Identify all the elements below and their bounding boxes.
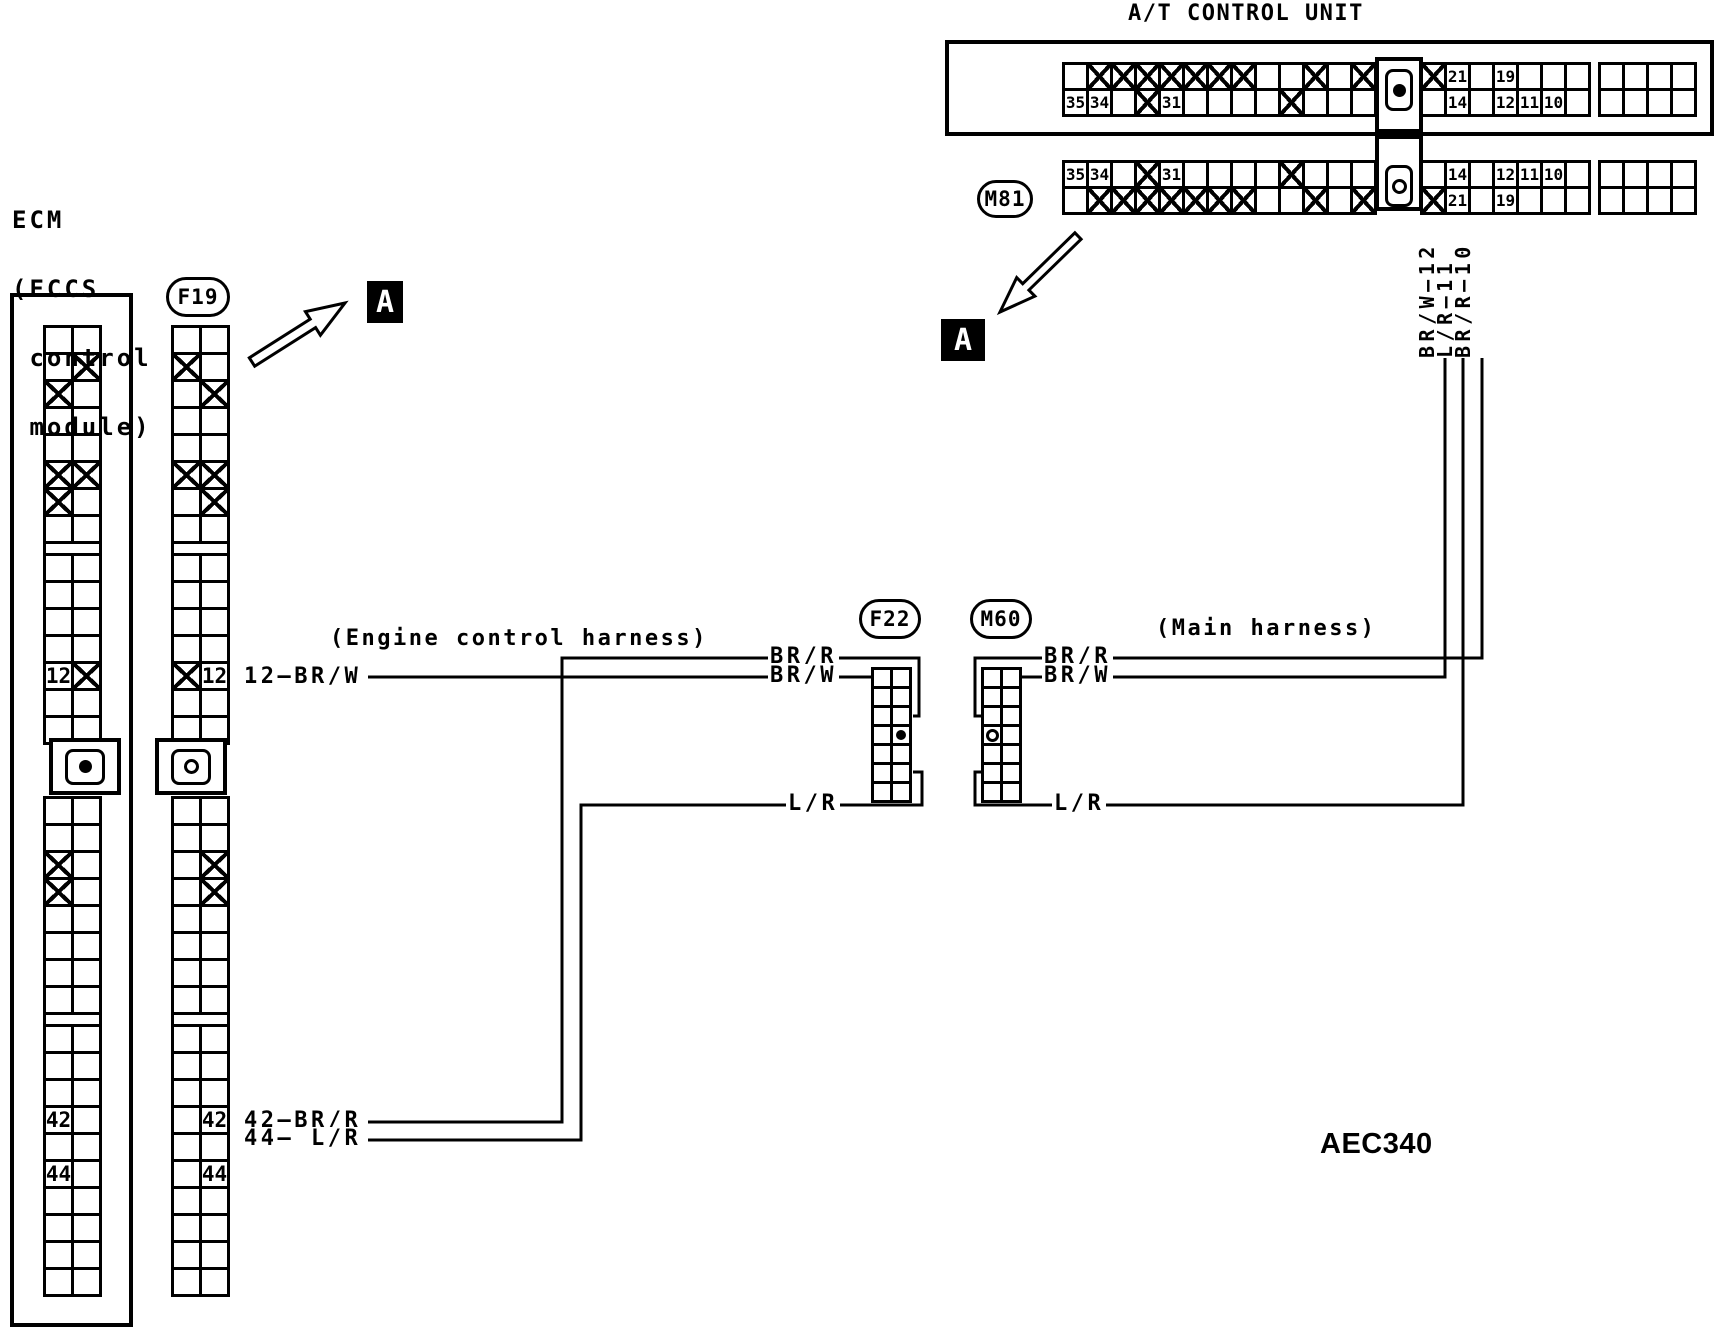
pin-cell: 12 xyxy=(43,661,74,691)
wire-label-f22-lr: L/R xyxy=(786,792,840,816)
main-harness-label: (Main harness) xyxy=(1154,617,1378,641)
pin-cell xyxy=(1598,186,1625,215)
pin-cell xyxy=(71,1267,102,1297)
pin-cell xyxy=(171,985,202,1015)
pin-cell xyxy=(71,634,102,664)
pin-cell xyxy=(1254,160,1281,189)
ecm-label-line3: control xyxy=(12,347,152,370)
pin-cell xyxy=(1670,62,1697,91)
wire-label-m60-brw: BR/W xyxy=(1042,664,1113,688)
pin-cell xyxy=(199,514,230,544)
pin-cell xyxy=(1564,186,1591,215)
pin-cell xyxy=(171,1213,202,1243)
pin-cell xyxy=(71,607,102,637)
pin-cell xyxy=(71,958,102,988)
strip-row xyxy=(43,553,102,583)
strip-row xyxy=(43,1240,102,1270)
pin-cell xyxy=(199,553,230,583)
pin-cell xyxy=(1564,160,1591,189)
pin-cell xyxy=(1564,88,1591,117)
pin-cell xyxy=(43,931,74,961)
pin-cell xyxy=(199,1078,230,1108)
pin-cell xyxy=(71,1105,102,1135)
pin-cell xyxy=(199,1240,230,1270)
pin-cell xyxy=(199,688,230,718)
pin-cell xyxy=(1326,160,1353,189)
strip-row xyxy=(171,985,230,1015)
pin-cell xyxy=(1646,62,1673,91)
pin-cell xyxy=(1598,62,1625,91)
pin-cell-x xyxy=(1086,186,1113,215)
strip-row xyxy=(171,406,230,436)
strip-row xyxy=(43,931,102,961)
pin-cell: 12 xyxy=(1492,88,1519,117)
pin-cell xyxy=(1230,88,1257,117)
pin-cell xyxy=(1564,62,1591,91)
pin-cell xyxy=(1670,186,1697,215)
strip-row xyxy=(43,580,102,610)
connector-id-f19: F19 xyxy=(166,277,230,317)
strip-row xyxy=(43,1024,102,1054)
strip-row: 44 xyxy=(43,1159,102,1189)
pin-cell xyxy=(43,823,74,853)
pin-cell xyxy=(71,1078,102,1108)
f19-connector-strip: 124244 xyxy=(171,325,230,1297)
pin-cell xyxy=(1670,160,1697,189)
pin-cell xyxy=(199,406,230,436)
pin-cell xyxy=(71,1213,102,1243)
pin-cell xyxy=(171,688,202,718)
pin-cell xyxy=(1468,88,1495,117)
pin-cell xyxy=(171,904,202,934)
pin-cell xyxy=(71,904,102,934)
pin-cell xyxy=(43,607,74,637)
pin-cell xyxy=(1230,160,1257,189)
pin-cell-x xyxy=(1110,62,1137,91)
pin-cell xyxy=(1326,88,1353,117)
pin-cell xyxy=(171,433,202,463)
pin-cell-x xyxy=(199,850,230,880)
wire-label-at-pin10: BR/R—10 xyxy=(1454,242,1472,358)
strip-row xyxy=(171,580,230,610)
strip-row xyxy=(43,850,102,880)
pin-cell xyxy=(71,514,102,544)
pin-cell: 35 xyxy=(1062,88,1089,117)
pin-cell xyxy=(171,553,202,583)
pin-cell-x xyxy=(1302,62,1329,91)
ecm-label: ECM (ECCS control module) xyxy=(12,163,152,485)
pin-cell xyxy=(43,1051,74,1081)
pin-cell-x xyxy=(43,487,74,517)
pin-cell: 44 xyxy=(43,1159,74,1189)
pin-cell xyxy=(171,580,202,610)
pin-cell-x xyxy=(199,487,230,517)
pin-cell xyxy=(71,580,102,610)
pin-cell-x xyxy=(1206,62,1233,91)
pin-cell: 34 xyxy=(1086,160,1113,189)
pin-cell xyxy=(171,607,202,637)
pin-cell xyxy=(1468,62,1495,91)
strip-row xyxy=(43,985,102,1015)
key-slot-inner xyxy=(65,749,105,785)
pin-cell-x xyxy=(43,877,74,907)
pin-cell-x xyxy=(1230,186,1257,215)
connector-id-f22: F22 xyxy=(859,599,921,639)
pin-cell xyxy=(199,1267,230,1297)
pin-cell-x xyxy=(1350,62,1377,91)
pin-cell xyxy=(1468,186,1495,215)
pin-cell xyxy=(43,634,74,664)
pin-cell xyxy=(43,904,74,934)
pin-cell-x xyxy=(1182,62,1209,91)
wiring-diagram: A/T CONTROL UNIT 211935343114121110 3534… xyxy=(0,0,1726,1344)
strip-row xyxy=(171,379,230,409)
pin-cell xyxy=(171,379,202,409)
section-arrow-left-icon xyxy=(249,303,345,366)
pin-cell xyxy=(1206,160,1233,189)
pin-cell: 12 xyxy=(1492,160,1519,189)
m81-connector: 353431141211102119 xyxy=(1062,160,1697,215)
pin-cell xyxy=(43,514,74,544)
pin-cell-x xyxy=(1158,186,1185,215)
pin-cell xyxy=(71,1132,102,1162)
strip-row xyxy=(43,607,102,637)
pin-cell xyxy=(1468,160,1495,189)
strip-row xyxy=(43,514,102,544)
pin-cell: 31 xyxy=(1158,88,1185,117)
pin-cell: 35 xyxy=(1062,160,1089,189)
strip-row xyxy=(43,1051,102,1081)
pin-cell: 10 xyxy=(1540,160,1567,189)
pin-cell-x xyxy=(1158,62,1185,91)
strip-row xyxy=(171,1240,230,1270)
pin-cell xyxy=(1254,186,1281,215)
pin-cell xyxy=(171,796,202,826)
pin-cell xyxy=(199,1132,230,1162)
pin-cell xyxy=(71,985,102,1015)
pin-cell xyxy=(1110,160,1137,189)
strip-row xyxy=(171,460,230,490)
pin-cell xyxy=(1278,62,1305,91)
strip-row xyxy=(43,1213,102,1243)
pin-cell: 12 xyxy=(199,661,230,691)
strip-row xyxy=(171,1078,230,1108)
strip-row xyxy=(43,823,102,853)
wire-lr-main xyxy=(975,358,1463,805)
strip-row xyxy=(171,1267,230,1297)
strip-row xyxy=(171,931,230,961)
pin-cell xyxy=(1182,88,1209,117)
key-slot xyxy=(49,738,121,795)
pin-cell xyxy=(71,1024,102,1054)
key-slot xyxy=(155,738,227,795)
pin-cell: 31 xyxy=(1158,160,1185,189)
pin-cell xyxy=(199,1024,230,1054)
pin-cell xyxy=(43,1132,74,1162)
pin-cell xyxy=(1420,160,1447,189)
pin-cell-x xyxy=(199,379,230,409)
pin-cell xyxy=(199,931,230,961)
f22-connector xyxy=(871,667,912,803)
pin-cell xyxy=(199,580,230,610)
strip-row xyxy=(43,904,102,934)
pin-cell-x xyxy=(1420,62,1447,91)
pin-cell-x xyxy=(1206,186,1233,215)
pin-cell xyxy=(71,1240,102,1270)
pin-cell xyxy=(1182,160,1209,189)
key-dot-icon xyxy=(79,760,92,773)
pin-cell-x xyxy=(1086,62,1113,91)
pin-cell-x xyxy=(1230,62,1257,91)
pin-cell: 42 xyxy=(43,1105,74,1135)
pin-cell-x xyxy=(1278,160,1305,189)
strip-row xyxy=(171,514,230,544)
pin-cell: 21 xyxy=(1444,62,1471,91)
key-slot xyxy=(1375,135,1423,211)
pin-cell xyxy=(171,487,202,517)
pin-cell xyxy=(1110,88,1137,117)
pin-cell xyxy=(1062,186,1089,215)
wire-label-ecm-pin12: 12—BR/W xyxy=(242,665,363,689)
ecm-label-line2: (ECCS xyxy=(12,278,152,301)
pin-cell xyxy=(43,1078,74,1108)
pin-cell-x xyxy=(1302,186,1329,215)
pin-cell xyxy=(171,1105,202,1135)
pin-cell xyxy=(199,985,230,1015)
strip-row xyxy=(171,1213,230,1243)
key-slot xyxy=(1375,57,1423,133)
strip-row xyxy=(43,688,102,718)
pin-cell xyxy=(1000,781,1022,803)
pin-cell-x xyxy=(1110,186,1137,215)
strip-row: 12 xyxy=(171,661,230,691)
pin-cell xyxy=(71,1051,102,1081)
pin-cell xyxy=(71,688,102,718)
wire-brr-engine xyxy=(368,658,919,1122)
strip-row xyxy=(171,1132,230,1162)
pin-cell xyxy=(71,850,102,880)
pin-cell xyxy=(199,325,230,355)
pin-cell-x xyxy=(1420,186,1447,215)
key-dot-icon xyxy=(896,730,906,740)
pin-cell xyxy=(171,1240,202,1270)
wire-label-m60-lr: L/R xyxy=(1052,792,1106,816)
section-marker-a-left: A xyxy=(367,281,403,323)
pin-cell: 10 xyxy=(1540,88,1567,117)
pin-cell xyxy=(43,1024,74,1054)
pin-cell xyxy=(43,553,74,583)
key-circle-icon xyxy=(1392,179,1407,194)
strip-row xyxy=(171,877,230,907)
key-slot-inner xyxy=(171,749,211,785)
pin-cell xyxy=(199,433,230,463)
pin-cell-x xyxy=(1182,186,1209,215)
pin-cell xyxy=(1540,186,1567,215)
strip-row xyxy=(43,958,102,988)
pin-cell xyxy=(171,850,202,880)
pin-cell xyxy=(199,634,230,664)
engine-harness-label: (Engine control harness) xyxy=(328,627,710,651)
strip-row: 12 xyxy=(43,661,102,691)
strip-row xyxy=(43,877,102,907)
pin-cell xyxy=(171,406,202,436)
strip-row xyxy=(43,1078,102,1108)
pin-cell xyxy=(171,1024,202,1054)
pin-cell-x xyxy=(71,661,102,691)
strip-row xyxy=(171,607,230,637)
pin-cell xyxy=(171,325,202,355)
pin-cell: 19 xyxy=(1492,186,1519,215)
pin-cell xyxy=(171,877,202,907)
wire-lr-engine xyxy=(368,772,922,1140)
strip-row xyxy=(171,823,230,853)
pin-cell xyxy=(199,1213,230,1243)
pin-cell-x xyxy=(171,661,202,691)
ecm-label-line1: ECM xyxy=(12,209,152,232)
strip-row xyxy=(171,634,230,664)
key-circle-icon xyxy=(184,759,199,774)
strip-row xyxy=(171,433,230,463)
pin-cell xyxy=(1646,186,1673,215)
pin-cell xyxy=(71,796,102,826)
pin-cell xyxy=(1622,88,1649,117)
pin-cell xyxy=(1622,62,1649,91)
diagram-code: AEC340 xyxy=(1320,1128,1433,1161)
pin-cell xyxy=(43,958,74,988)
pin-cell xyxy=(1302,160,1329,189)
pin-cell xyxy=(1646,160,1673,189)
pin-cell: 21 xyxy=(1444,186,1471,215)
pin-cell xyxy=(71,931,102,961)
pin-cell xyxy=(199,904,230,934)
pin-cell xyxy=(43,688,74,718)
pin-cell xyxy=(1206,88,1233,117)
pin-cell xyxy=(1326,186,1353,215)
pin-cell xyxy=(199,958,230,988)
pin-cell xyxy=(1254,88,1281,117)
pin-cell xyxy=(1420,88,1447,117)
pin-cell-x xyxy=(199,877,230,907)
strip-row xyxy=(171,958,230,988)
ecm-label-line4: module) xyxy=(12,416,152,439)
strip-row xyxy=(171,325,230,355)
strip-row xyxy=(43,796,102,826)
strip-row: 42 xyxy=(43,1105,102,1135)
pin-cell xyxy=(71,877,102,907)
page-title: A/T CONTROL UNIT xyxy=(1126,2,1366,26)
pin-cell: 11 xyxy=(1516,160,1543,189)
strip-row xyxy=(171,1024,230,1054)
pin-cell xyxy=(1622,186,1649,215)
pin-cell-x xyxy=(1278,88,1305,117)
pin-cell xyxy=(1326,62,1353,91)
strip-row xyxy=(171,796,230,826)
pin-cell xyxy=(43,1213,74,1243)
pin-cell xyxy=(1540,62,1567,91)
pin-cell xyxy=(171,1051,202,1081)
pin-cell xyxy=(1350,88,1377,117)
strip-row xyxy=(43,1132,102,1162)
pin-cell: 42 xyxy=(199,1105,230,1135)
pin-cell-x xyxy=(1134,160,1161,189)
strip-row xyxy=(43,1267,102,1297)
key-circle-icon xyxy=(986,729,999,742)
pin-cell xyxy=(1598,160,1625,189)
connector-row xyxy=(871,781,912,803)
pin-cell xyxy=(171,931,202,961)
pin-cell xyxy=(171,1159,202,1189)
pin-cell xyxy=(171,958,202,988)
pin-cell xyxy=(1062,62,1089,91)
section-marker-a-right: A xyxy=(941,319,985,361)
pin-cell xyxy=(43,580,74,610)
pin-cell xyxy=(199,1051,230,1081)
pin-cell xyxy=(171,634,202,664)
pin-cell xyxy=(71,823,102,853)
pin-cell xyxy=(1278,186,1305,215)
m60-connector xyxy=(981,667,1022,803)
pin-cell-x xyxy=(199,460,230,490)
pin-cell: 44 xyxy=(199,1159,230,1189)
pin-cell xyxy=(199,796,230,826)
connector-id-m60: M60 xyxy=(970,599,1032,639)
pin-cell xyxy=(1622,160,1649,189)
pin-cell xyxy=(171,823,202,853)
wire-label-ecm-pin44: 44— L/R xyxy=(242,1127,363,1151)
pin-cell: 19 xyxy=(1492,62,1519,91)
pin-cell: 11 xyxy=(1516,88,1543,117)
connector-id-m81: M81 xyxy=(977,180,1033,218)
pin-cell xyxy=(43,1186,74,1216)
wire-label-f22-brw: BR/W xyxy=(768,664,839,688)
strip-row xyxy=(171,688,230,718)
pin-cell: 34 xyxy=(1086,88,1113,117)
pin-cell xyxy=(199,352,230,382)
pin-cell xyxy=(171,514,202,544)
pin-cell xyxy=(43,985,74,1015)
pin-cell xyxy=(43,1267,74,1297)
strip-row xyxy=(171,553,230,583)
strip-row xyxy=(171,904,230,934)
pin-cell xyxy=(199,1186,230,1216)
pin-cell xyxy=(1646,88,1673,117)
pin-cell xyxy=(1516,186,1543,215)
strip-row xyxy=(171,1186,230,1216)
pin-cell xyxy=(43,796,74,826)
pin-cell-x xyxy=(1134,62,1161,91)
pin-cell xyxy=(43,1240,74,1270)
strip-row xyxy=(43,1186,102,1216)
pin-cell xyxy=(1302,88,1329,117)
strip-row xyxy=(171,850,230,880)
pin-cell xyxy=(171,1132,202,1162)
pin-cell xyxy=(171,1186,202,1216)
pin-cell xyxy=(1254,62,1281,91)
pin-cell-x xyxy=(43,850,74,880)
pin-cell-x xyxy=(171,460,202,490)
strip-row xyxy=(171,1051,230,1081)
pin-cell: 14 xyxy=(1444,160,1471,189)
strip-row xyxy=(171,487,230,517)
pin-cell xyxy=(171,1078,202,1108)
at-control-unit-connector: 211935343114121110 xyxy=(1062,62,1697,117)
connector-row xyxy=(981,781,1022,803)
pin-cell xyxy=(71,1186,102,1216)
pin-cell xyxy=(1350,160,1377,189)
pin-cell xyxy=(171,1267,202,1297)
pin-cell xyxy=(890,781,912,803)
strip-row: 42 xyxy=(171,1105,230,1135)
